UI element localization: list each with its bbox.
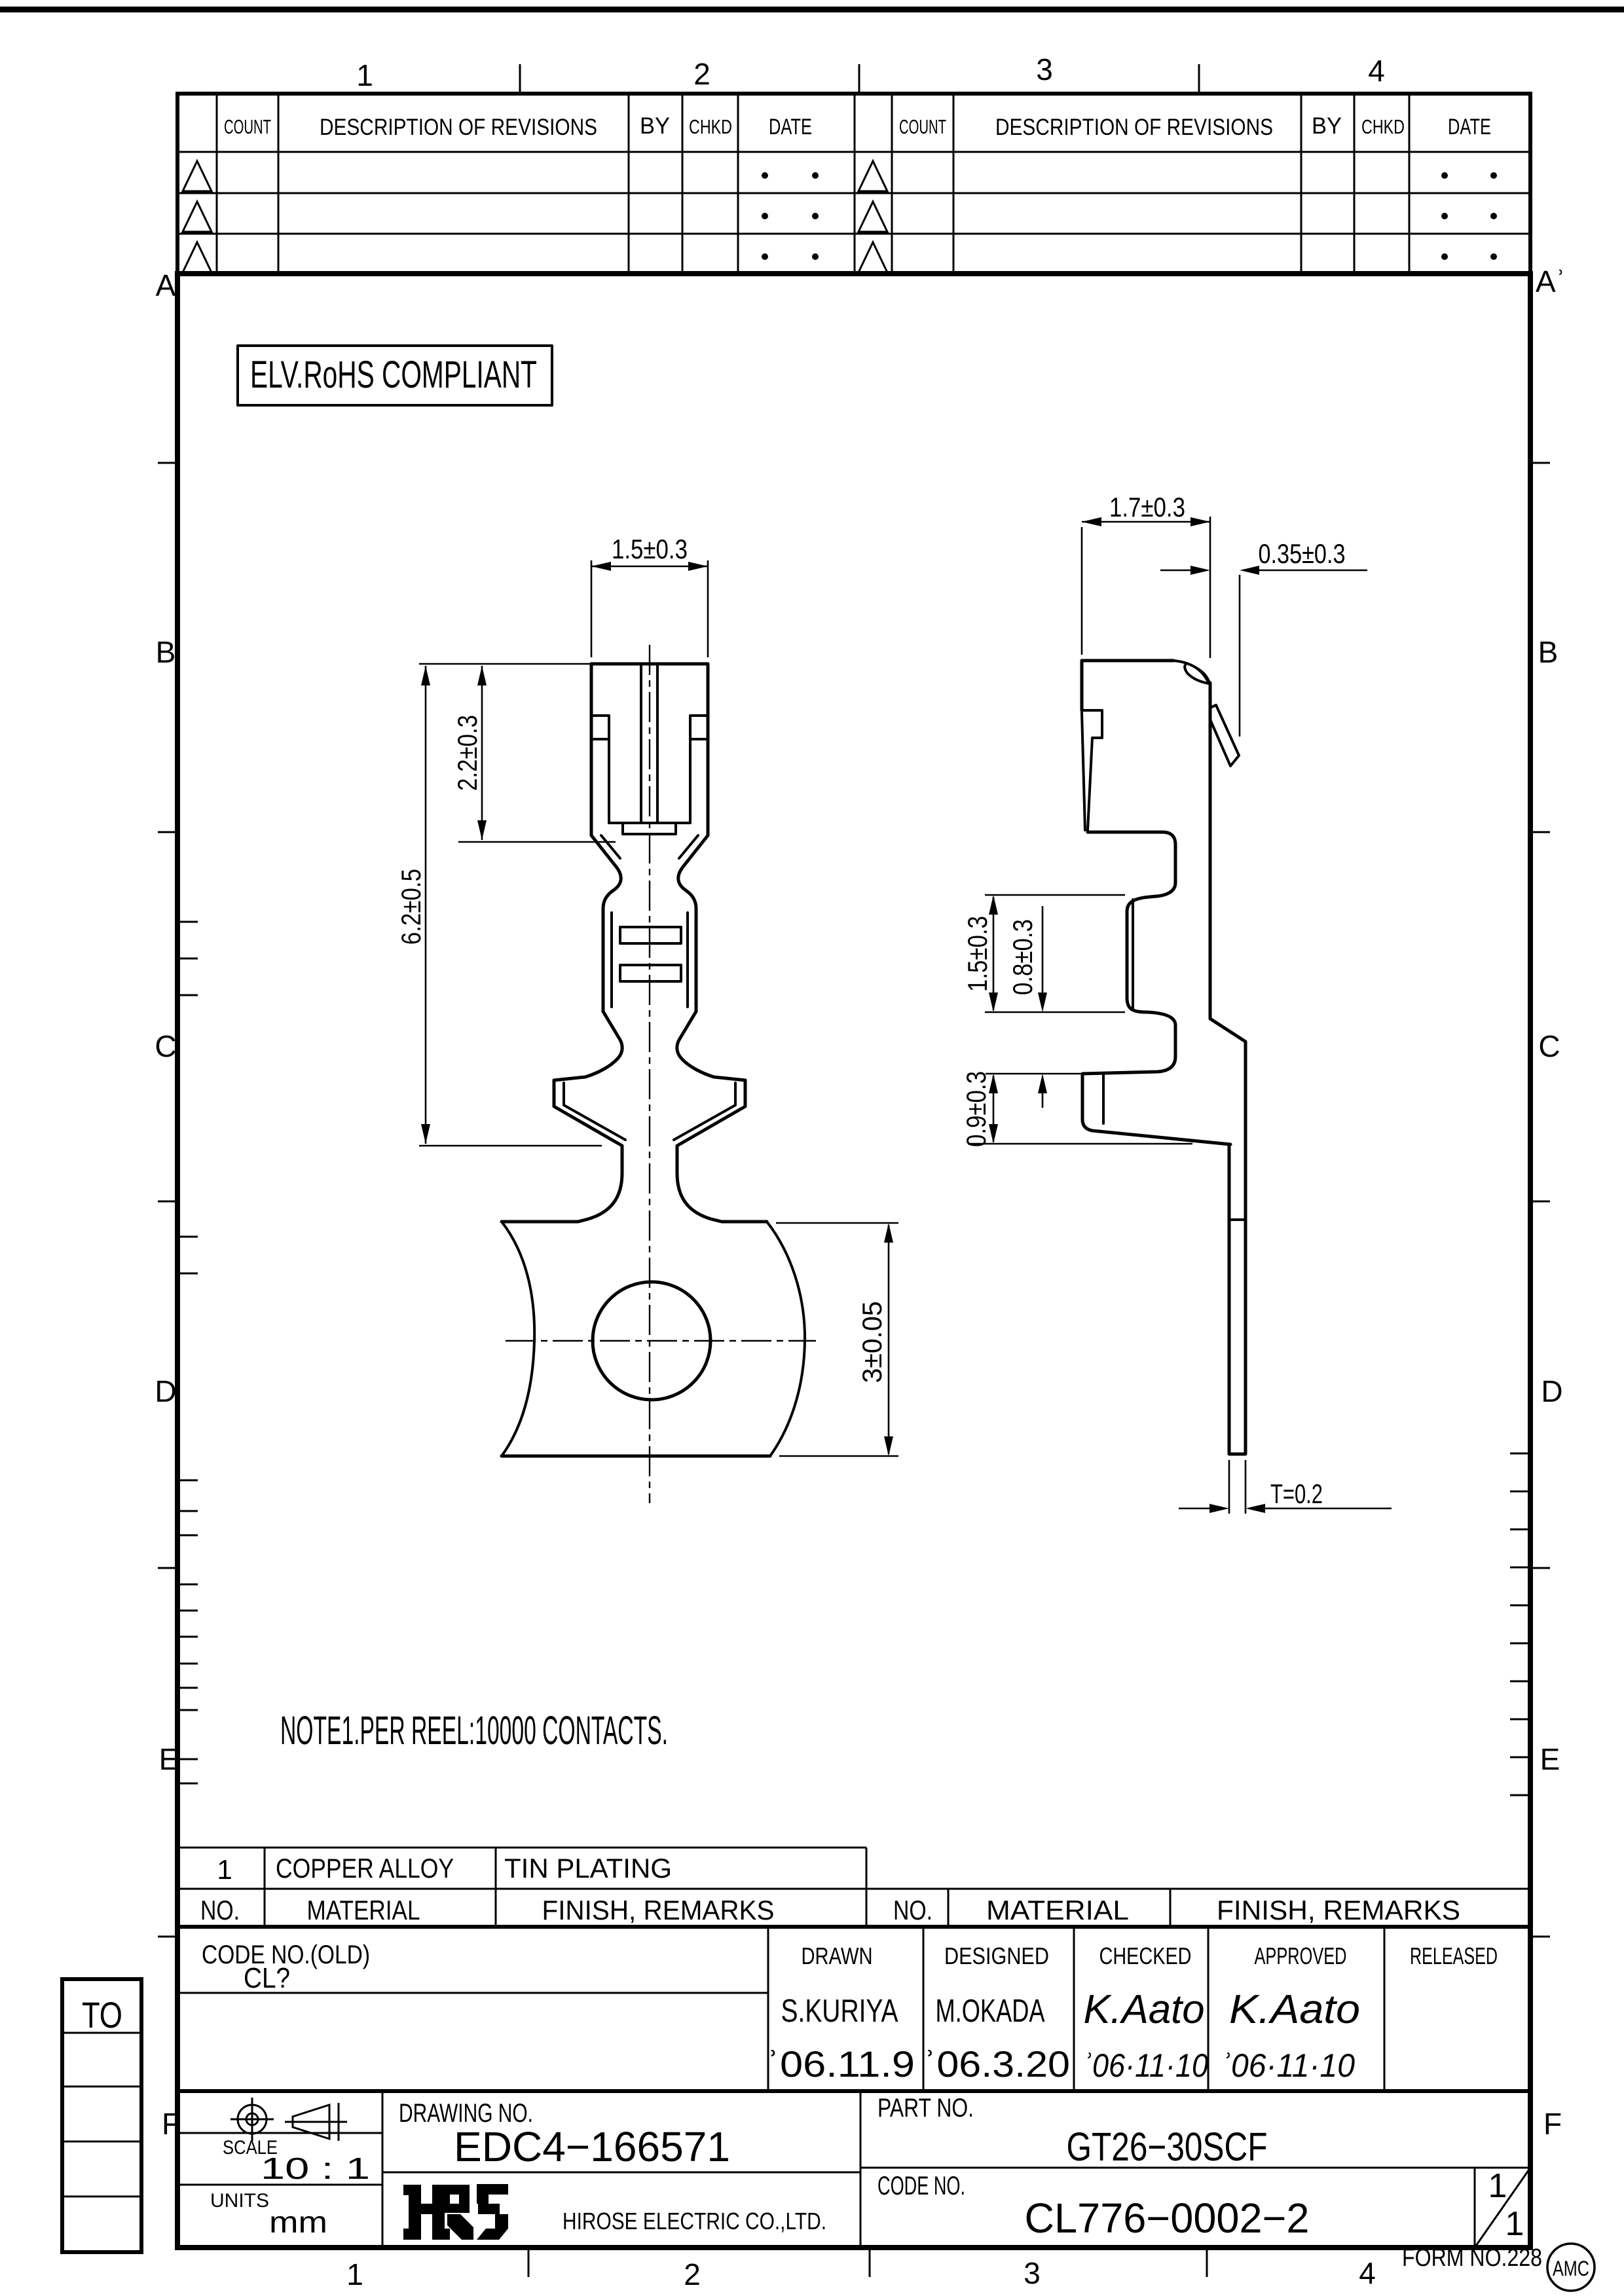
svg-text:UNITS: UNITS xyxy=(210,2190,269,2212)
svg-text:A: A xyxy=(156,268,176,302)
svg-text:1: 1 xyxy=(217,1854,232,1885)
svg-text:C: C xyxy=(155,1029,176,1063)
svg-text:1.7±0.3: 1.7±0.3 xyxy=(1109,492,1185,522)
svg-text:ʾ06·11·10: ʾ06·11·10 xyxy=(1221,2047,1355,2084)
svg-text:TIN PLATING: TIN PLATING xyxy=(504,1853,672,1884)
svg-text:F: F xyxy=(1543,2107,1562,2141)
svg-text:B: B xyxy=(156,635,176,669)
svg-text:CODE NO.: CODE NO. xyxy=(877,2172,965,2200)
svg-text:EDC4−166571: EDC4−166571 xyxy=(454,2123,730,2170)
svg-text:FINISH, REMARKS: FINISH, REMARKS xyxy=(1217,1895,1460,1925)
svg-text:4: 4 xyxy=(1359,2256,1376,2290)
svg-text:1: 1 xyxy=(346,2257,363,2291)
svg-text:DATE: DATE xyxy=(1448,115,1491,139)
svg-text:2: 2 xyxy=(693,57,710,91)
svg-text:F: F xyxy=(162,2107,180,2141)
svg-text:NO.: NO. xyxy=(200,1895,240,1925)
svg-text:1.5±0.3: 1.5±0.3 xyxy=(962,916,993,992)
svg-text:3: 3 xyxy=(1024,2256,1041,2290)
svg-text:4: 4 xyxy=(1368,54,1385,88)
svg-text:COPPER ALLOY: COPPER ALLOY xyxy=(276,1853,454,1884)
svg-text:DESIGNED: DESIGNED xyxy=(944,1942,1049,1969)
svg-text:HIROSE ELECTRIC CO.,LTD.: HIROSE ELECTRIC CO.,LTD. xyxy=(563,2208,826,2234)
svg-text:GT26−30SCF: GT26−30SCF xyxy=(1067,2124,1268,2169)
svg-text:CL?: CL? xyxy=(244,1962,290,1994)
svg-text:PART NO.: PART NO. xyxy=(877,2094,974,2123)
svg-text:E: E xyxy=(1540,1742,1560,1776)
svg-text:M.OKADA: M.OKADA xyxy=(936,1994,1045,2029)
svg-text:ELV.RoHS COMPLIANT: ELV.RoHS COMPLIANT xyxy=(250,354,537,396)
svg-text:AMC: AMC xyxy=(1553,2257,1589,2280)
svg-text:2.2±0.3: 2.2±0.3 xyxy=(452,715,483,791)
svg-text:Aʾ: Aʾ xyxy=(1536,264,1566,299)
svg-text:1: 1 xyxy=(1505,2205,1524,2243)
svg-text:C: C xyxy=(1538,1029,1560,1063)
svg-text:DESCRIPTION OF REVISIONS: DESCRIPTION OF REVISIONS xyxy=(995,115,1273,140)
svg-text:ʾ06.3.20: ʾ06.3.20 xyxy=(923,2043,1070,2085)
svg-text:FINISH, REMARKS: FINISH, REMARKS xyxy=(542,1895,775,1925)
svg-text:3±0.05: 3±0.05 xyxy=(857,1302,887,1383)
svg-text:S.KURIYA: S.KURIYA xyxy=(781,1994,898,2029)
svg-text:0.35±0.3: 0.35±0.3 xyxy=(1259,538,1346,569)
svg-text:E: E xyxy=(159,1742,179,1776)
svg-text:T=0.2: T=0.2 xyxy=(1270,1478,1323,1509)
svg-text:CHKD: CHKD xyxy=(1361,115,1405,138)
svg-text:RELEASED: RELEASED xyxy=(1410,1942,1498,1969)
svg-text:NO.: NO. xyxy=(893,1895,932,1925)
svg-text:10 : 1: 10 : 1 xyxy=(261,2151,370,2185)
svg-text:MATERIAL: MATERIAL xyxy=(986,1895,1129,1925)
svg-text:B: B xyxy=(1538,635,1559,669)
svg-text:mm: mm xyxy=(269,2205,327,2239)
svg-text:2: 2 xyxy=(684,2257,701,2291)
svg-text:CHECKED: CHECKED xyxy=(1099,1942,1192,1969)
svg-text:1.5±0.3: 1.5±0.3 xyxy=(612,534,688,564)
svg-text:K.Aato: K.Aato xyxy=(1229,1987,1360,2032)
svg-text:ʾ06.11.9: ʾ06.11.9 xyxy=(766,2043,915,2085)
svg-text:COUNT: COUNT xyxy=(224,115,271,138)
svg-text:APPROVED: APPROVED xyxy=(1255,1942,1347,1969)
svg-text:1: 1 xyxy=(356,58,373,92)
svg-text:6.2±0.5: 6.2±0.5 xyxy=(396,869,426,945)
svg-text:0.9±0.3: 0.9±0.3 xyxy=(961,1071,991,1147)
svg-text:D: D xyxy=(1541,1374,1562,1408)
svg-text:NOTE1.PER REEL:10000 CONTACTS.: NOTE1.PER REEL:10000 CONTACTS. xyxy=(280,1708,668,1753)
svg-text:BY: BY xyxy=(640,113,670,139)
svg-text:3: 3 xyxy=(1036,52,1053,86)
svg-text:K.Aato: K.Aato xyxy=(1084,1987,1205,2032)
svg-text:TO: TO xyxy=(82,1994,122,2035)
svg-text:ʾ06·11·10: ʾ06·11·10 xyxy=(1082,2047,1208,2084)
svg-text:DATE: DATE xyxy=(769,115,812,139)
svg-text:D: D xyxy=(155,1374,176,1408)
svg-text:CHKD: CHKD xyxy=(689,115,732,138)
svg-text:CL776−0002−2: CL776−0002−2 xyxy=(1025,2195,1310,2242)
svg-text:0.8±0.3: 0.8±0.3 xyxy=(1007,919,1038,995)
svg-text:FORM NO.228: FORM NO.228 xyxy=(1402,2244,1542,2272)
svg-text:MATERIAL: MATERIAL xyxy=(307,1895,420,1925)
svg-text:DESCRIPTION OF REVISIONS: DESCRIPTION OF REVISIONS xyxy=(320,115,597,140)
svg-text:DRAWN: DRAWN xyxy=(802,1942,873,1969)
svg-text:BY: BY xyxy=(1312,113,1342,139)
svg-text:1: 1 xyxy=(1488,2167,1507,2205)
svg-text:COUNT: COUNT xyxy=(899,115,946,138)
